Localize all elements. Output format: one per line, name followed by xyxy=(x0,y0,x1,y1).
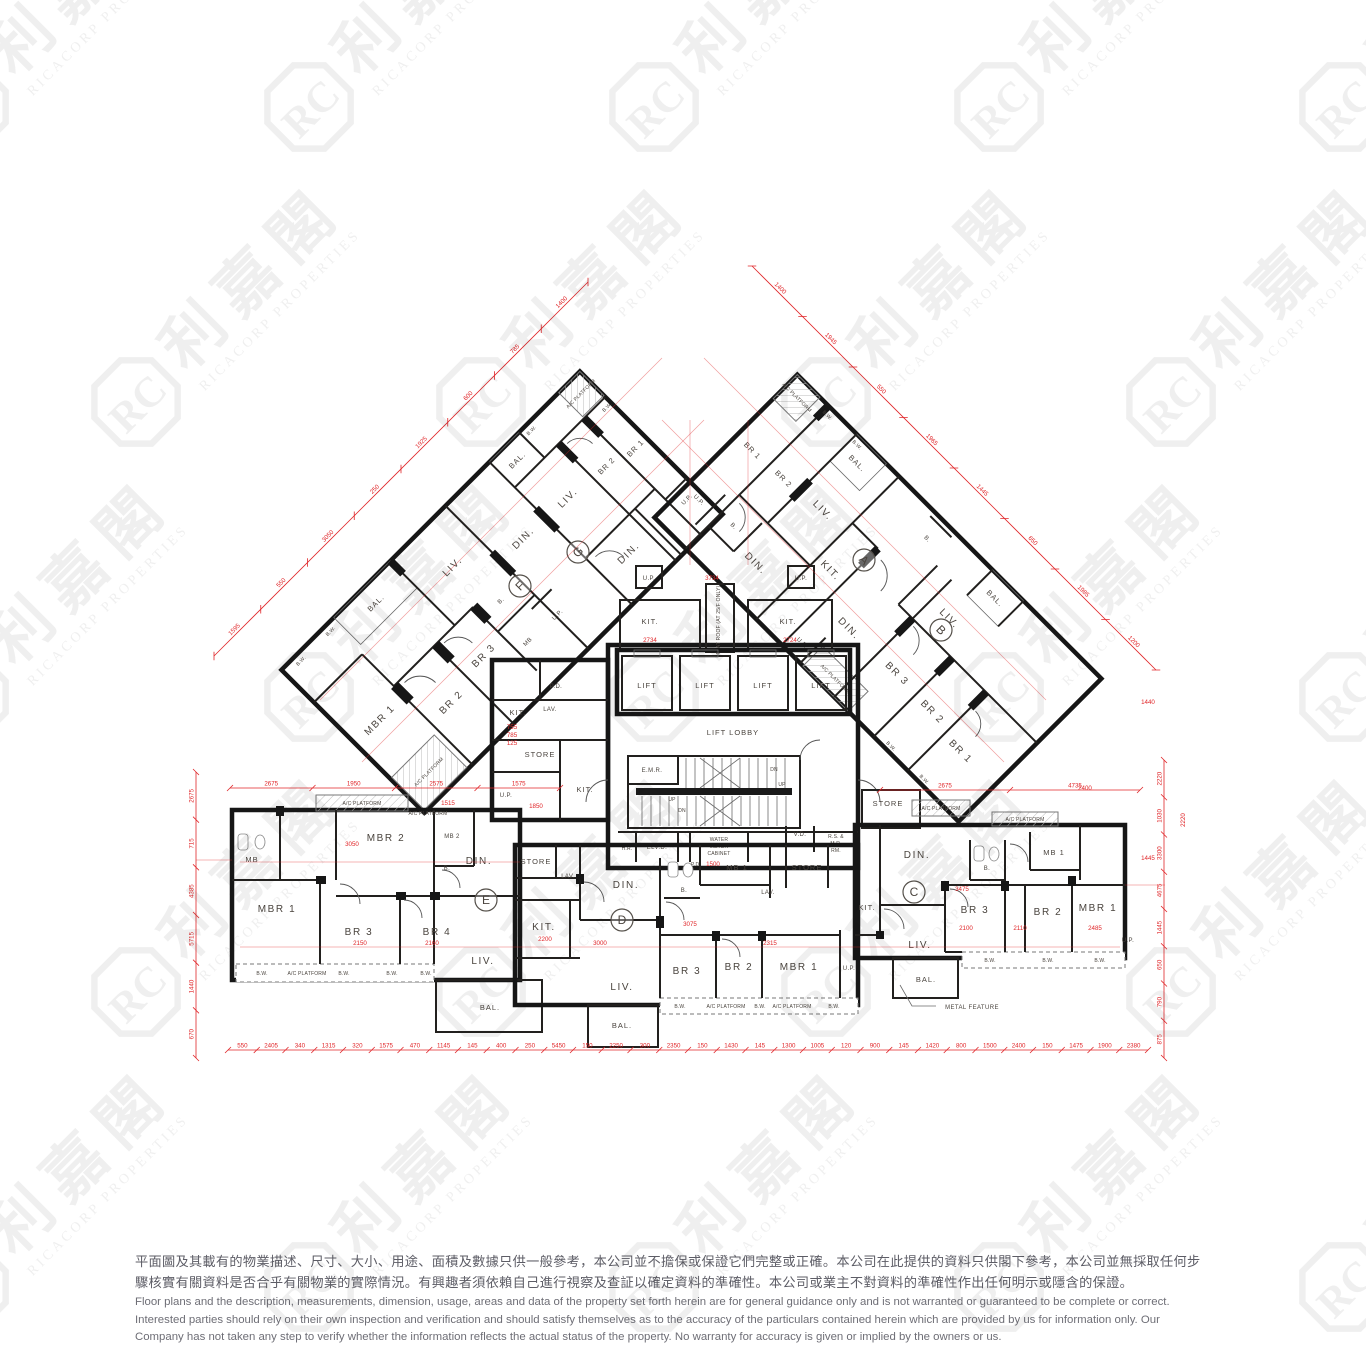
dim-chain-left: 6701440571543857152675 xyxy=(189,769,200,1061)
dim-755: 755 xyxy=(507,724,518,731)
d-bw-3: B.W. xyxy=(828,1004,839,1010)
emr-label: E.M.R. xyxy=(642,768,663,774)
svg-text:LIFT: LIFT xyxy=(695,681,714,690)
d-bw-1: B.W. xyxy=(674,1004,685,1010)
e-bw-3: B.W. xyxy=(386,971,397,977)
rsmr-3: RM. xyxy=(831,848,841,854)
svg-text:E: E xyxy=(482,893,490,907)
dim-1500: 1500 xyxy=(706,861,720,868)
dim-chain-value: 145 xyxy=(467,1043,478,1050)
staircase: E.M.R. DN UP UP DN xyxy=(628,756,800,828)
e-acp-top-label: A/C PLATFORM xyxy=(343,801,382,807)
dim-1515: 1515 xyxy=(441,800,455,807)
dim-chain-value: 400 xyxy=(496,1043,507,1050)
dim-chain-value: 3300 xyxy=(1157,846,1164,860)
dim-chain-value: 4675 xyxy=(1157,883,1164,897)
svg-text:C: C xyxy=(910,885,919,899)
dim-3000: 3000 xyxy=(593,940,607,947)
unit-badge-f: F xyxy=(509,575,531,597)
dim-3050: 3050 xyxy=(345,841,359,848)
c-bw-2: B.W. xyxy=(1042,958,1053,964)
d-mb1-label: MB 1 xyxy=(726,863,748,872)
c-mb1-label: MB 1 xyxy=(1043,848,1065,857)
c-acp-1: A/C PLATFORM xyxy=(922,806,961,812)
dim-chain-value: 670 xyxy=(189,1028,196,1039)
dim-chain-value: 1500 xyxy=(983,1043,997,1050)
c-mbr1-label: MBR 1 xyxy=(1079,903,1118,914)
b-din-label: DIN. xyxy=(835,616,861,642)
disclaimer-en-line1: Floor plans and the description, measure… xyxy=(135,1295,1240,1311)
disclaimer-en-line3: Company has not taken any step to verify… xyxy=(135,1330,1240,1346)
dim-1440: 1440 xyxy=(1141,699,1155,706)
vd-label: V.D. xyxy=(794,832,807,838)
svg-text:LIFT: LIFT xyxy=(637,681,656,690)
dim-2485: 2485 xyxy=(1088,925,1102,932)
e-mbr1-label: MBR 1 xyxy=(258,904,297,915)
d-mbr1-label: MBR 1 xyxy=(780,962,819,973)
dim-chain-value: 1475 xyxy=(1069,1043,1083,1050)
stair-up-right: UP xyxy=(778,782,786,788)
c-bw-3: B.W. xyxy=(1094,958,1105,964)
unit-badge-a: A xyxy=(853,549,875,571)
dim-chain-value: 2675 xyxy=(938,783,952,790)
g-up2-label: U.P. xyxy=(643,576,656,582)
e-br3-label: BR 3 xyxy=(345,927,374,938)
e-bw-2: B.W. xyxy=(338,971,349,977)
dim-2110: 2110 xyxy=(1013,925,1027,932)
dim-chain-value: 875 xyxy=(1157,1034,1164,1045)
d-acp-2: A/C PLATFORM xyxy=(773,1004,812,1010)
c-acp-2: A/C PLATFORM xyxy=(1006,817,1045,823)
c-br2-label: BR 2 xyxy=(1034,907,1063,918)
unit-badge-d: D xyxy=(611,909,633,931)
dim-chain-value: 1315 xyxy=(322,1043,336,1050)
dim-chain-value: 1005 xyxy=(810,1043,824,1050)
f-mbr1-label: MBR 1 xyxy=(363,703,398,738)
a-br2-label: BR 2 xyxy=(773,468,794,489)
dim-2724: 2724 xyxy=(783,637,797,644)
d-lav-label: LAV. xyxy=(561,874,575,880)
stair-dn-left: DN xyxy=(678,808,686,814)
f-din-label: DIN. xyxy=(510,525,536,551)
d-bath-label: B. xyxy=(681,888,687,894)
e-mb2-label: MB 2 xyxy=(444,834,460,840)
d-br2-label: BR 2 xyxy=(725,962,754,973)
f-bal-label: BAL. xyxy=(366,593,387,614)
f-store-label: STORE xyxy=(525,750,556,759)
dim-chain-mid-right: 26754735 xyxy=(877,783,1143,794)
dim-chain-value: 2400 xyxy=(1012,1043,1026,1050)
c-up-label: U.P. xyxy=(1122,938,1135,944)
f-br2-label: BR 2 xyxy=(437,689,465,717)
dim-chain-value: 1420 xyxy=(925,1043,939,1050)
g-bal-label: BAL. xyxy=(507,450,528,471)
e-mb-label: MB xyxy=(245,855,258,864)
f-kit-label: KIT. xyxy=(510,708,527,717)
a-bal-label: BAL. xyxy=(847,453,868,474)
dim-chain-value: 2380 xyxy=(1127,1043,1141,1050)
a-up2-label: U.P. xyxy=(795,576,808,582)
g-up-label: U.P. xyxy=(681,494,694,507)
dim-chain-value: 150 xyxy=(582,1043,593,1050)
dim-chain-value: 120 xyxy=(841,1043,852,1050)
d-acp-1: A/C PLATFORM xyxy=(707,1004,746,1010)
dim-chain-value: 800 xyxy=(956,1043,967,1050)
dim-chain-value: 2675 xyxy=(189,788,196,802)
floor-plan-page: MBR 1 BAL. LIV. BR 2 BR 3 MB B. U.P. DIN… xyxy=(0,0,1366,1366)
dim-3075: 3075 xyxy=(683,921,697,928)
dim-chain-value: 1575 xyxy=(379,1043,393,1050)
dim-chain-value: 150 xyxy=(1042,1043,1053,1050)
e-up-label: U.P. xyxy=(500,793,513,799)
a-kit-label: KIT. xyxy=(780,617,797,626)
dim-chain-right: 87579065014454675330010302220 xyxy=(1157,757,1168,1061)
a-br1-label: BR 1 xyxy=(742,440,763,461)
d-din-label: DIN. xyxy=(613,880,639,891)
dim-chain-value: 1430 xyxy=(724,1043,738,1050)
dim-chain-value: 650 xyxy=(1026,535,1039,548)
svg-text:LIFT: LIFT xyxy=(753,681,772,690)
dim-chain-value: 470 xyxy=(410,1043,421,1050)
dim-chain-value: 550 xyxy=(275,577,288,590)
dim-chain-value: 150 xyxy=(697,1043,708,1050)
b-bath-label: B. xyxy=(922,535,931,544)
dim-chain-value: 250 xyxy=(525,1043,536,1050)
dim-chain-value: 2350 xyxy=(667,1043,681,1050)
dim-chain-value: 1030 xyxy=(1157,808,1164,822)
dim-chain-value: 5715 xyxy=(189,931,196,945)
lift-lobby-label: LIFT LOBBY xyxy=(707,728,759,737)
e-kit-label: KIT. xyxy=(577,785,594,794)
c-din-label: DIN. xyxy=(904,850,930,861)
dim-chain-value: 4385 xyxy=(189,884,196,898)
floor-plan-drawing: MBR 1 BAL. LIV. BR 2 BR 3 MB B. U.P. DIN… xyxy=(0,0,1366,1366)
d-kit-label: KIT. xyxy=(532,922,556,933)
dim-2100: 2100 xyxy=(959,925,973,932)
dim-chain-bottom: 5502405340131532015754701145145400250545… xyxy=(225,1043,1151,1054)
dim-785: 785 xyxy=(507,732,518,739)
svg-text:D: D xyxy=(618,913,627,927)
c-bal-label: BAL. xyxy=(916,975,936,984)
stair-up-left: UP xyxy=(668,797,676,803)
dim-2220: 2220 xyxy=(1180,813,1187,827)
g-br2-label: BR 2 xyxy=(596,455,617,476)
e-br4-label: BR 4 xyxy=(423,927,452,938)
f-lav-label: LAV. xyxy=(543,707,557,713)
disclaimer-block: 平面圖及其載有的物業描述、尺寸、大小、用途、面積及數據只供一般參考，本公司並不擔… xyxy=(135,1251,1240,1346)
dim-chain-value: 340 xyxy=(295,1043,306,1050)
d-store2-label: STORE xyxy=(792,863,823,872)
dim-chain-value: 550 xyxy=(875,383,888,396)
d-bw-2: B.W. xyxy=(754,1004,765,1010)
disclaimer-en-line2: Interested parties should rely on their … xyxy=(135,1313,1240,1329)
flat-roof-label: FLAT ROOF (AT 25/F ONLY) xyxy=(716,585,722,654)
dim-chain-value: 790 xyxy=(1157,996,1164,1007)
dim-chain-value: 145 xyxy=(755,1043,766,1050)
e-bath-label: B. xyxy=(444,866,450,872)
dim-chain-value: 320 xyxy=(352,1043,363,1050)
dim-chain-value: 1145 xyxy=(437,1043,451,1050)
dim-chain-value: 2575 xyxy=(429,781,443,788)
dim-2200: 2200 xyxy=(538,936,552,943)
d-bal-label: BAL. xyxy=(612,1021,632,1030)
unit-badge-b: B xyxy=(930,619,952,641)
dim-125: 125 xyxy=(507,740,518,747)
e-liv-label: LIV. xyxy=(471,956,494,967)
a-din-label: DIN. xyxy=(742,551,768,577)
g-br1-label: BR 1 xyxy=(625,438,646,459)
e-acp-top2-label: A/C PLATFORM xyxy=(409,811,448,817)
a-liv-label: LIV. xyxy=(810,499,834,523)
unit-d: STORE LAV. KIT. DIN. LIV. BAL. B. MB 1 L… xyxy=(515,845,858,1047)
stair-dn-right: DN xyxy=(770,767,778,773)
e-mbr2-label: MBR 2 xyxy=(367,833,406,844)
wing-left-units-f-g: MBR 1 BAL. LIV. BR 2 BR 3 MB B. U.P. DIN… xyxy=(281,368,725,812)
b-br1-label: BR 1 xyxy=(946,738,974,766)
d-liv-label: LIV. xyxy=(610,982,633,993)
dim-3734: 3734 xyxy=(705,575,719,582)
b-bal-label: BAL. xyxy=(985,588,1006,609)
dim-chain-value: 785 xyxy=(509,343,522,356)
dim-chain-value: 650 xyxy=(1157,959,1164,970)
water-meter-1: WATER xyxy=(710,837,729,843)
dim-chain-value: 250 xyxy=(369,483,382,496)
metal-feature-label: METAL FEATURE xyxy=(945,1005,999,1011)
rsmr-1: R.S. & xyxy=(828,834,844,840)
dim-chain-value: 5450 xyxy=(552,1043,566,1050)
dim-chain-value: 300 xyxy=(640,1043,651,1050)
dim-chain-value: 1440 xyxy=(189,979,196,993)
c-liv-label: LIV. xyxy=(908,940,931,951)
dim-chain-value: 715 xyxy=(189,838,196,849)
dim-chain-value: 1900 xyxy=(1098,1043,1112,1050)
f-mb-label: MB xyxy=(523,637,534,648)
water-meter-3: CABINET xyxy=(707,851,730,857)
e-bal-label: BAL. xyxy=(480,1003,500,1012)
svg-text:LIFT: LIFT xyxy=(811,681,830,690)
f-up-label: U.P. xyxy=(551,609,564,622)
dim-2400: 2400 xyxy=(1078,785,1092,792)
unit-badge-e: E xyxy=(475,889,497,911)
g-liv-label: LIV. xyxy=(556,486,580,510)
dim-1850: 1850 xyxy=(529,803,543,810)
dim-chain-value: 900 xyxy=(870,1043,881,1050)
dim-chain-value: 145 xyxy=(898,1043,909,1050)
dim-2734: 2734 xyxy=(643,637,657,644)
e-acp-bot: A/C PLATFORM xyxy=(288,971,327,977)
dim-chain-value: 2675 xyxy=(264,781,278,788)
d-up-label: U.P. xyxy=(843,966,856,972)
lift-2: LIFT xyxy=(680,650,730,710)
lift-1: LIFT xyxy=(622,650,672,710)
disclaimer-zh-line1: 平面圖及其載有的物業描述、尺寸、大小、用途、面積及數據只供一般參考，本公司並不擔… xyxy=(135,1251,1240,1272)
unit-e: MB MBR 2 MB 2 B. MBR 1 BR 3 BR 4 DIN. LI… xyxy=(232,795,542,1032)
dim-chain-value: 550 xyxy=(237,1043,248,1050)
unit-c: STORE DIN. KIT. LIV. BAL. B. MB 1 BR 3 B… xyxy=(855,790,1134,1011)
dim-chain-diag-right: 140019455501965144565019851200 xyxy=(748,262,1160,674)
dim-chain-value: 2405 xyxy=(264,1043,278,1050)
dim-chain-diag-left: 1595550305025019256007851400 xyxy=(210,278,592,660)
c-bath-label: B. xyxy=(984,866,990,872)
dim-2160: 2160 xyxy=(425,940,439,947)
c-bw-1: B.W. xyxy=(984,958,995,964)
unit-badge-g: G xyxy=(567,541,589,563)
dim-chain-value: 2220 xyxy=(1157,771,1164,785)
f-bath-label: B. xyxy=(497,597,506,606)
disclaimer-zh-line2: 驟核實有關資料是否合乎有關物業的實際情況。有興趣者須依賴自己進行視察及查証以確定… xyxy=(135,1272,1240,1293)
unit-badge-c: C xyxy=(903,881,925,903)
c-br3-label: BR 3 xyxy=(961,905,990,916)
c-kit-label: KIT. xyxy=(859,903,876,912)
c-store-label: STORE xyxy=(873,799,904,808)
dim-chain-value: 1300 xyxy=(782,1043,796,1050)
dim-1445: 1445 xyxy=(1141,855,1155,862)
e-bw-4: B.W. xyxy=(420,971,431,977)
e-din-label: DIN. xyxy=(466,856,492,867)
b-br2-label: BR 2 xyxy=(918,698,946,726)
d-lav2-label: LAV. xyxy=(761,890,775,896)
dim-chain-value: 1445 xyxy=(1157,920,1164,934)
f-pd-label: P.D. xyxy=(550,684,563,690)
dim-chain-value: 2250 xyxy=(609,1043,623,1050)
d-br3-label: BR 3 xyxy=(673,966,702,977)
a-bath-label: B. xyxy=(729,522,738,531)
dim-chain-value: 1950 xyxy=(347,781,361,788)
e-bw-1: B.W. xyxy=(256,971,267,977)
dim-chain-value: 600 xyxy=(462,390,475,403)
lift-3: LIFT xyxy=(738,650,788,710)
d-store-label: STORE xyxy=(521,857,552,866)
dim-chain-value: 1575 xyxy=(512,781,526,788)
dim-3475: 3475 xyxy=(955,886,969,893)
g-kit-label: KIT. xyxy=(642,617,659,626)
dim-2150: 2150 xyxy=(353,940,367,947)
dim-2315: 2315 xyxy=(763,940,777,947)
dimension-lines: 1595550305025019256007851400 14001945550… xyxy=(189,262,1188,1061)
